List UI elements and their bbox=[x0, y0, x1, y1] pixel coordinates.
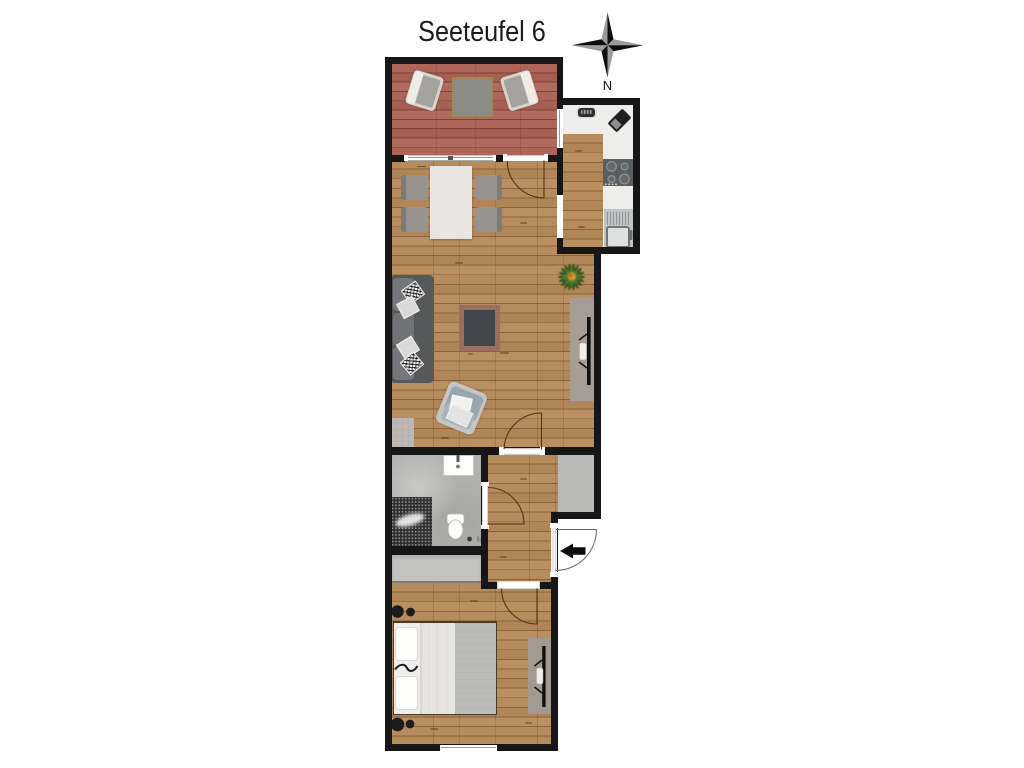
svg-text:N: N bbox=[603, 78, 612, 93]
